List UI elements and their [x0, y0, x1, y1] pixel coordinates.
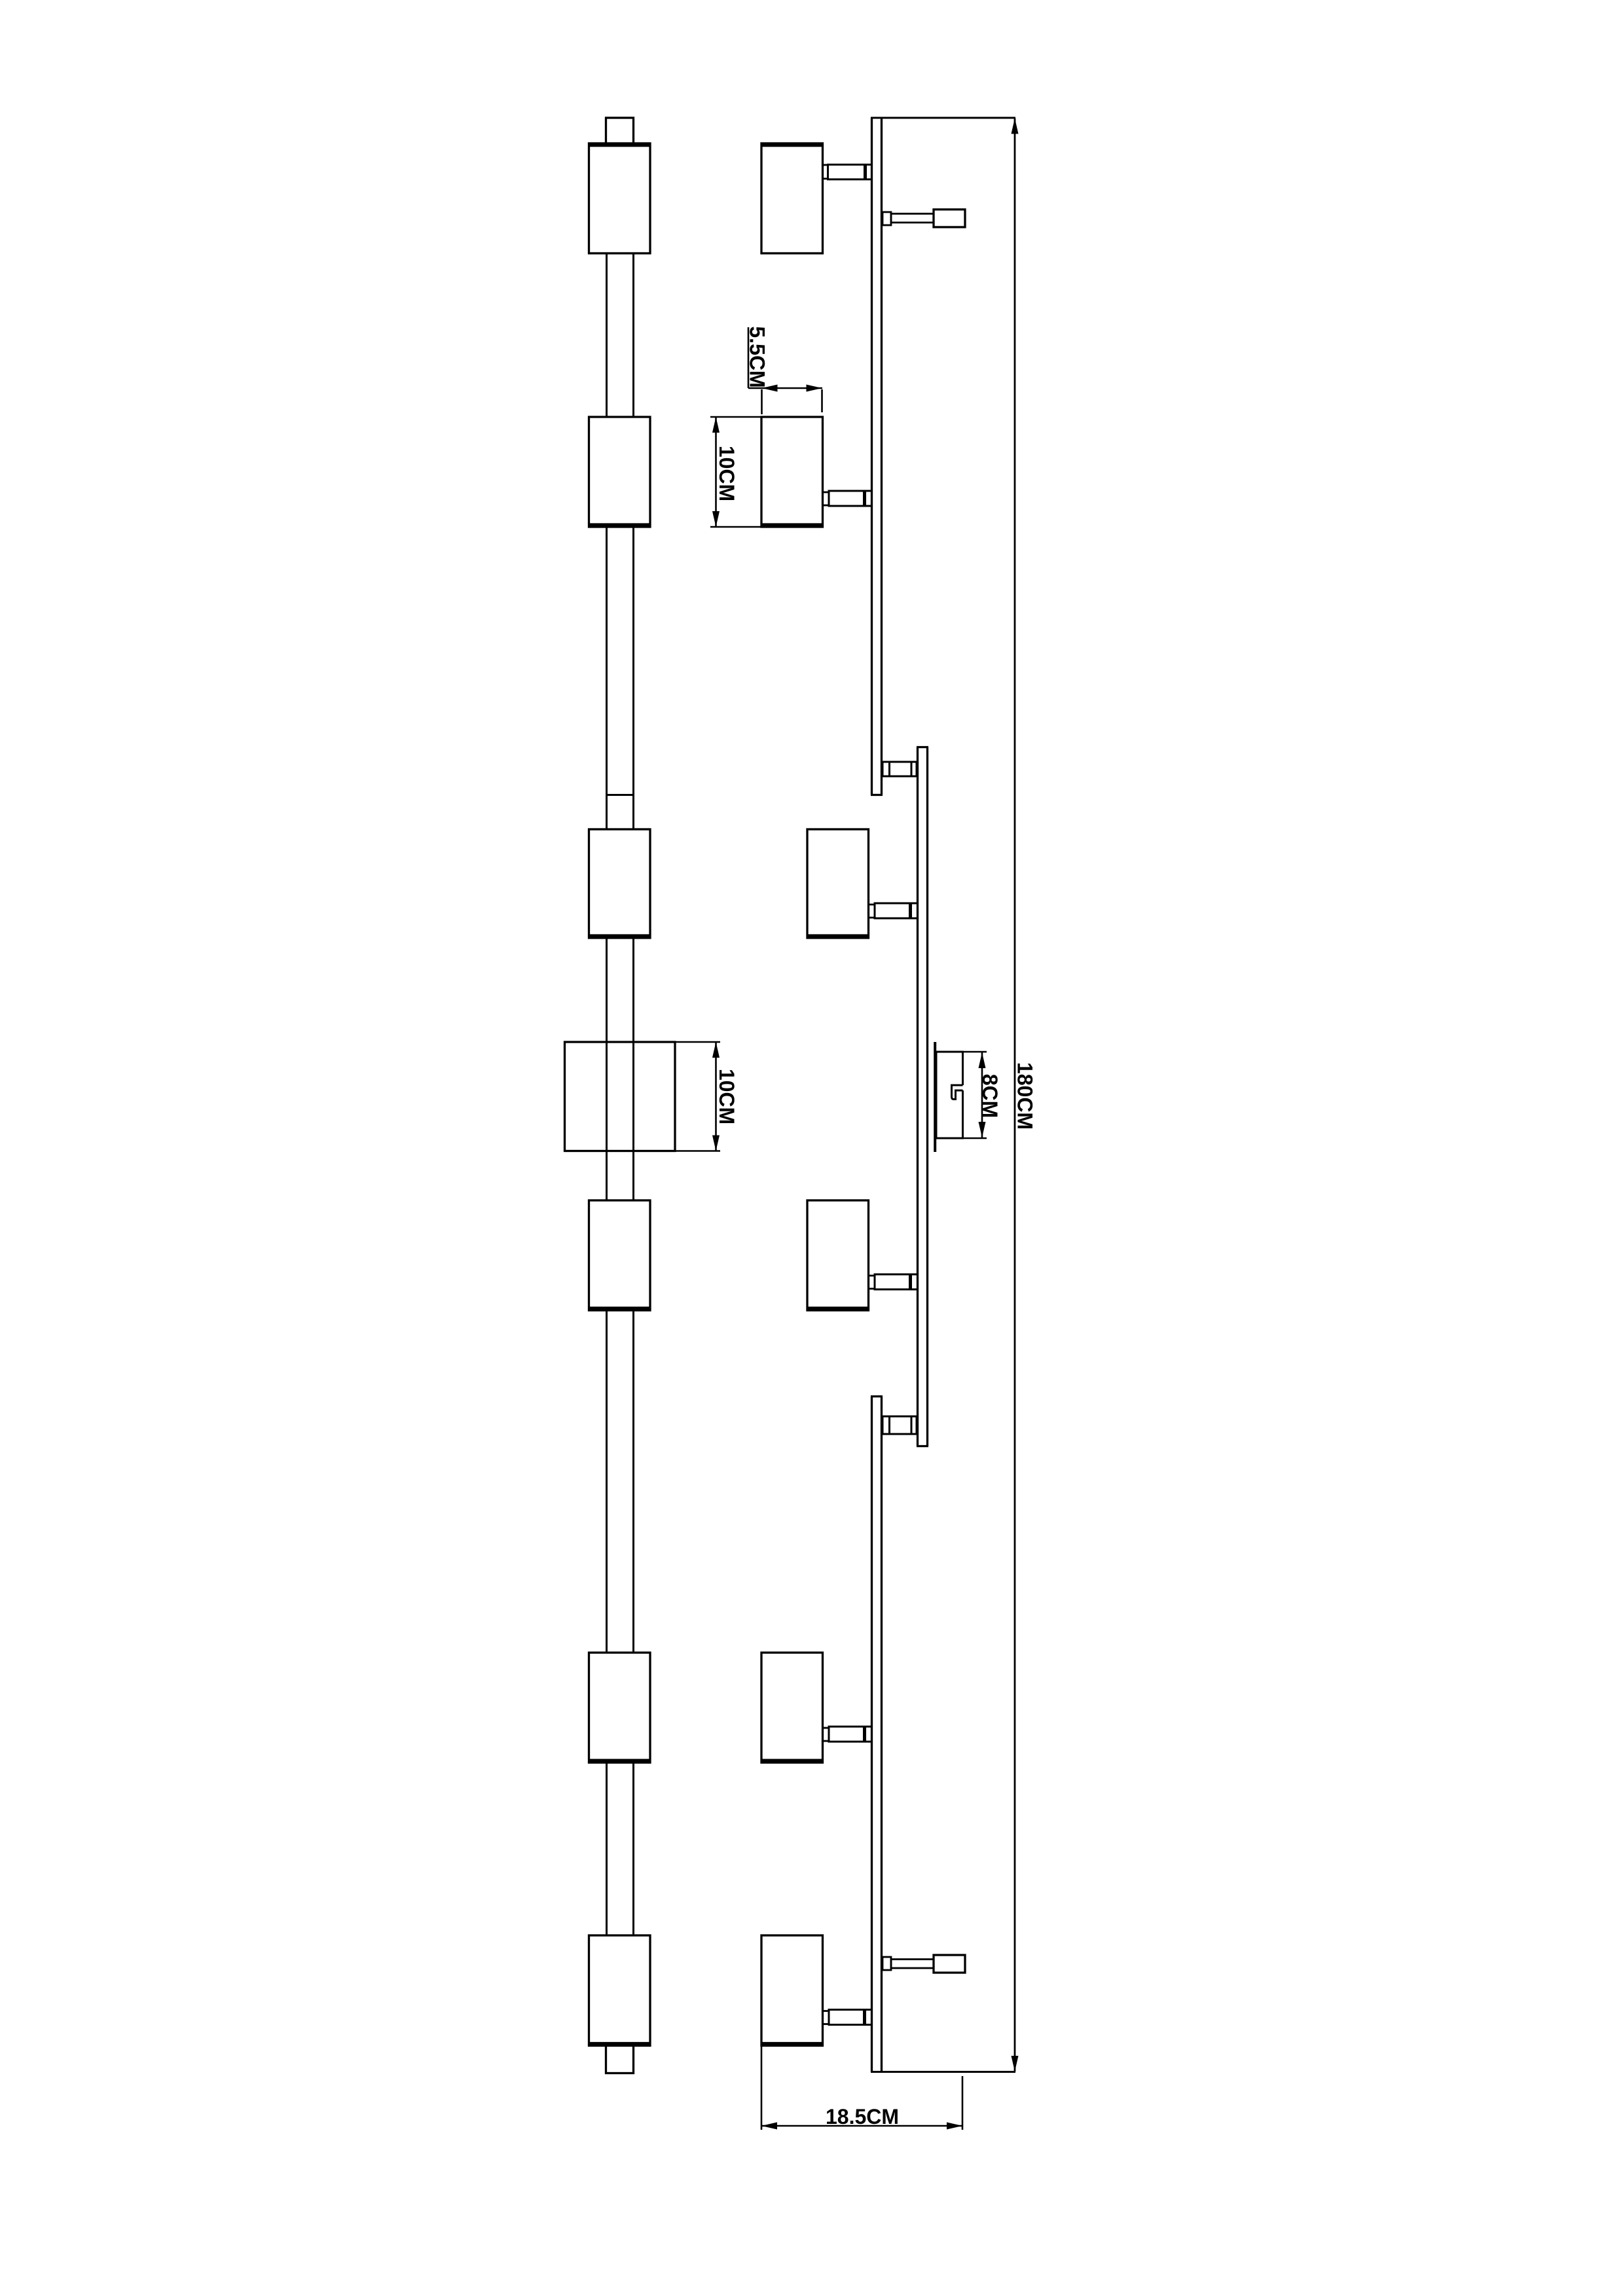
svg-text:10CM: 10CM [715, 1069, 739, 1124]
svg-text:180CM: 180CM [1013, 1062, 1037, 1130]
svg-text:10CM: 10CM [715, 446, 739, 501]
svg-text:18.5CM: 18.5CM [826, 2105, 899, 2128]
svg-text:5.5CM: 5.5CM [746, 326, 769, 387]
svg-text:8CM: 8CM [978, 1074, 1002, 1119]
